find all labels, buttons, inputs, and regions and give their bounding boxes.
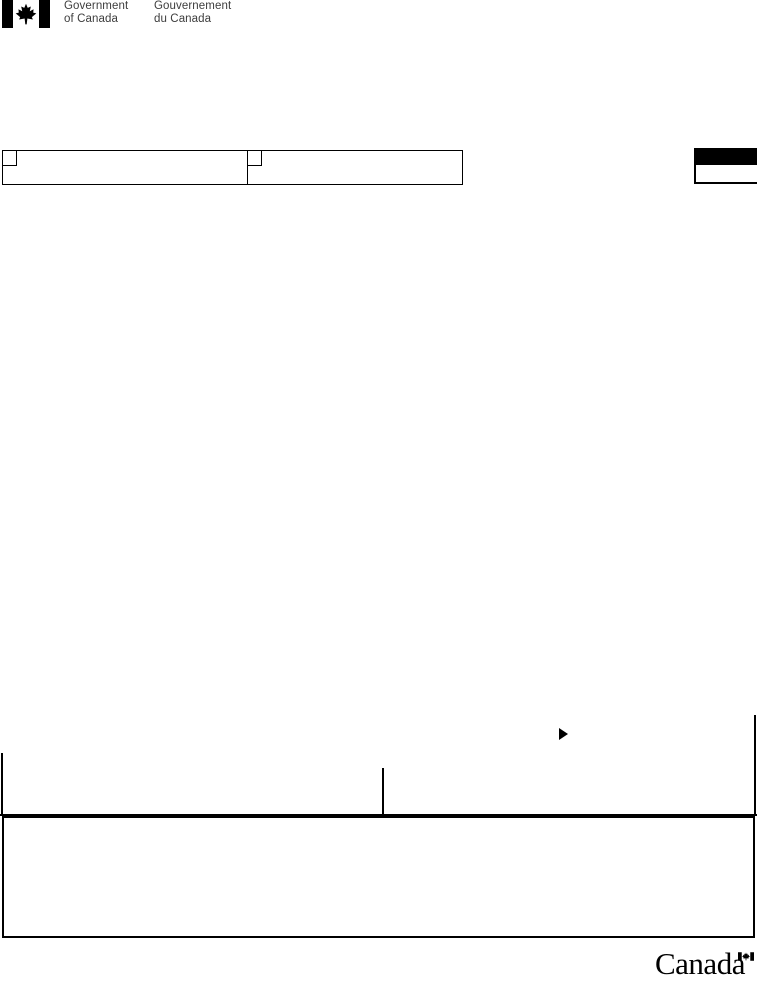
- flag-left-bar: [2, 0, 13, 28]
- fip-english-line2: of Canada: [64, 13, 118, 25]
- flag-centre: [13, 0, 39, 28]
- flag-right-bar: [39, 0, 50, 28]
- right-edge-line: [754, 715, 756, 814]
- left-entry-field[interactable]: [3, 769, 382, 814]
- corner-box-header: [696, 148, 757, 165]
- arrow-right-icon: [559, 728, 568, 740]
- fip-french-line1: Gouvernement: [154, 0, 231, 12]
- checkbox-cell-2[interactable]: [248, 151, 462, 184]
- large-entry-box[interactable]: [2, 816, 755, 938]
- wordmark-flag-icon: [738, 952, 754, 961]
- canada-wordmark: Canada: [655, 946, 755, 982]
- wordmark-text: Canada: [655, 946, 745, 981]
- corner-box: [694, 148, 757, 184]
- header-checkbox-table: [2, 150, 463, 185]
- corner-box-field[interactable]: [696, 165, 757, 182]
- fip-text-french: Gouvernementdu Canada: [154, 0, 231, 25]
- checkbox-1[interactable]: [3, 151, 17, 166]
- fip-text-english: Governmentof Canada: [64, 0, 128, 25]
- fip-english-line1: Government: [64, 0, 128, 12]
- canada-flag-icon: [2, 0, 50, 28]
- checkbox-cell-1[interactable]: [3, 151, 248, 184]
- right-entry-field[interactable]: [384, 769, 754, 814]
- form-page: { "fip": { "flag_icon": "canada-flag", "…: [0, 0, 757, 984]
- maple-leaf-icon: [15, 1, 37, 27]
- fip-french-line2: du Canada: [154, 13, 211, 25]
- checkbox-2[interactable]: [248, 151, 262, 166]
